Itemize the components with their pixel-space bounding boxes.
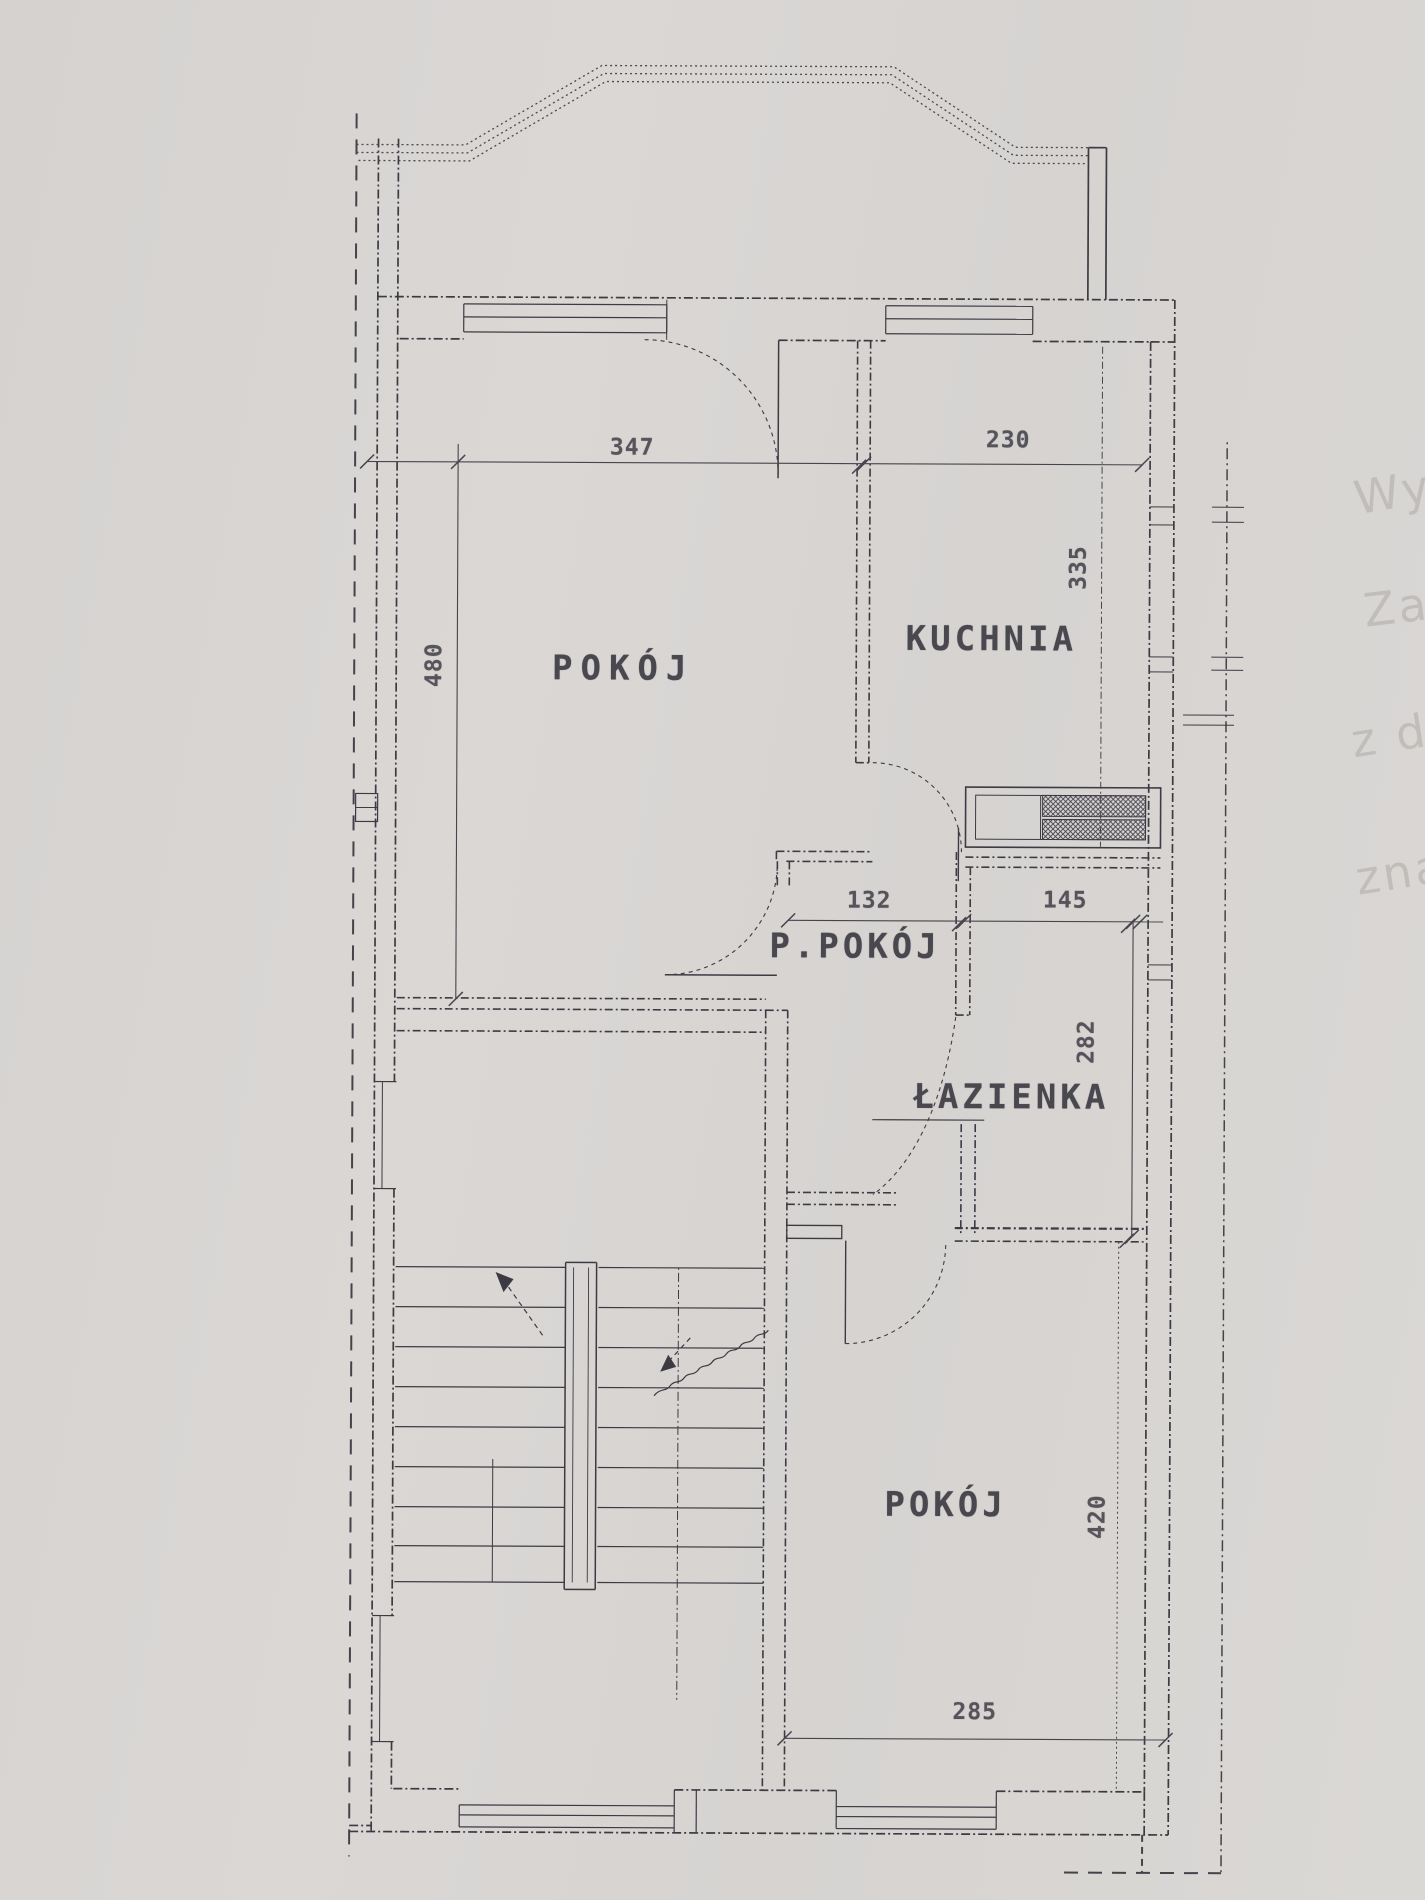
window-stairwell-bottom xyxy=(459,1789,696,1833)
window-pokoj-top xyxy=(464,304,667,333)
dim-label-420: 420 xyxy=(1084,1494,1110,1539)
balcony-side-wall xyxy=(1088,148,1107,300)
stair-direction-arrow-up xyxy=(495,1272,543,1336)
dim-label-347: 347 xyxy=(610,435,655,461)
dim-label-132: 132 xyxy=(847,888,892,914)
ghost-text-2: Zał xyxy=(1361,574,1425,637)
dim-label-285: 285 xyxy=(952,1699,997,1725)
window-openings xyxy=(351,303,1245,1835)
stair-rail-left xyxy=(492,1459,493,1582)
dimension-lines xyxy=(354,343,1178,1792)
floor-plan-drawing xyxy=(0,0,1425,1900)
stair-rail-right xyxy=(677,1268,679,1700)
stair-treads-right-flight xyxy=(597,1268,764,1584)
dim-label-145: 145 xyxy=(1043,887,1088,913)
door-kuchnia xyxy=(872,763,962,881)
door-pokoj-lower xyxy=(786,1225,946,1344)
window-pokoj-bottom xyxy=(836,1791,996,1830)
right-wall-opening-marks xyxy=(1148,507,1244,980)
dim-label-230: 230 xyxy=(986,427,1031,453)
stair-direction-arrow-down xyxy=(660,1338,690,1372)
interior-walls xyxy=(393,339,1162,1792)
stair-center-divider xyxy=(564,1262,596,1589)
room-label-pokoj-lower: POKÓJ xyxy=(884,1485,1007,1526)
dim-label-335: 335 xyxy=(1066,545,1092,590)
room-label-pokoj-upper: POKÓJ xyxy=(552,648,695,689)
stair-treads-left-flight xyxy=(394,1267,565,1583)
door-arcs xyxy=(640,300,964,1344)
staircase xyxy=(394,1262,769,1701)
ventilation-shaft-hatch xyxy=(965,787,1160,848)
window-kuchnia-top xyxy=(886,306,1033,335)
window-stairwell-left-1 xyxy=(374,1082,396,1189)
floor-plan-scan: POKÓJ KUCHNIA P.POKÓJ ŁAZIENKA POKÓJ 347… xyxy=(0,0,1425,1900)
window-stairwell-left-2 xyxy=(372,1616,395,1742)
outer-walls xyxy=(349,138,1175,1835)
door-balcony xyxy=(644,300,779,479)
property-boundary-line xyxy=(349,113,1229,1873)
room-label-p-pokoj: P.POKÓJ xyxy=(769,926,940,967)
room-label-kuchnia: KUCHNIA xyxy=(906,619,1077,660)
dim-label-282: 282 xyxy=(1074,1019,1100,1064)
scan-tilt-wrapper: POKÓJ KUCHNIA P.POKÓJ ŁAZIENKA POKÓJ 347… xyxy=(0,0,1425,1900)
balcony-outline xyxy=(356,64,1088,163)
wall-niche-left xyxy=(356,793,378,821)
dim-label-480: 480 xyxy=(421,642,447,687)
door-pokoj-upper xyxy=(665,863,777,975)
room-label-lazienka: ŁAZIENKA xyxy=(913,1077,1109,1118)
